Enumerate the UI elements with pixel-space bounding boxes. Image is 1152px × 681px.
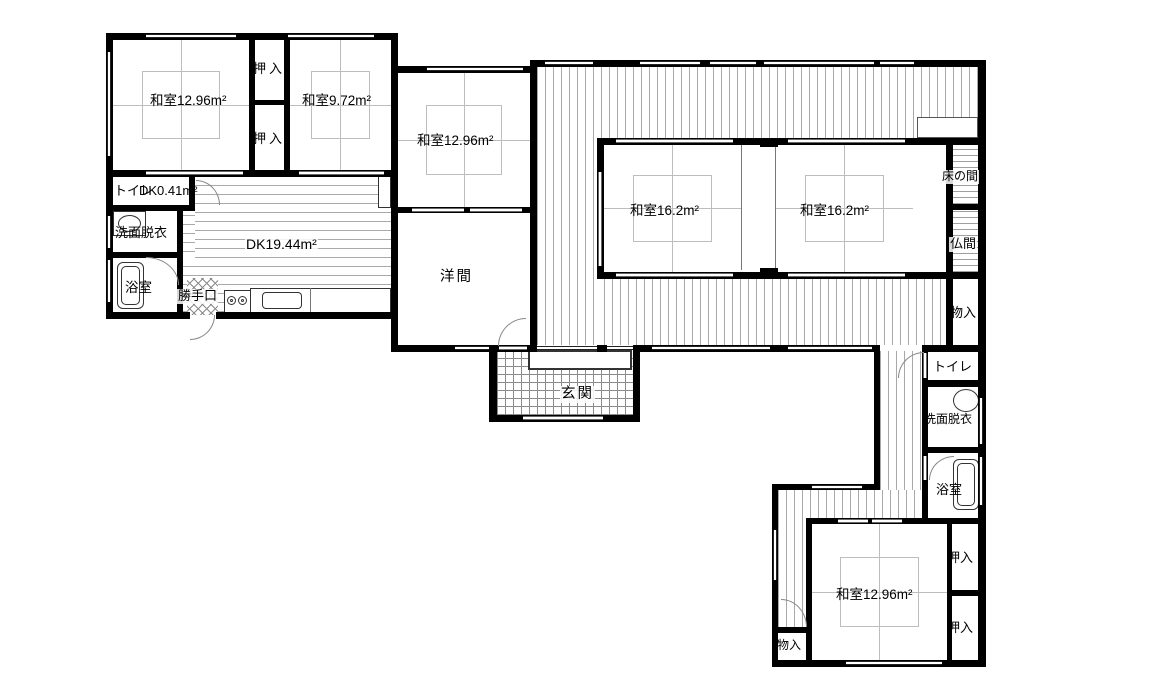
door-opening (788, 139, 905, 143)
door-opening (616, 273, 733, 277)
corridor-alcove (917, 117, 978, 138)
label-dk-main: DK19.44m² (245, 236, 318, 252)
label-bath-left: 浴室 (125, 280, 152, 296)
wall (530, 60, 986, 67)
label-washitsu-bottom-right: 和室12.96m² (836, 587, 913, 603)
wall (874, 351, 880, 490)
shelf-icon (378, 176, 391, 208)
wall (489, 345, 497, 422)
window (979, 457, 983, 505)
label-oshiire-br-lower: 押入 (947, 621, 973, 636)
wall (597, 345, 607, 352)
window (146, 34, 236, 38)
label-monoire-right: 物入 (950, 306, 976, 321)
window (537, 346, 597, 350)
door-opening (299, 171, 384, 175)
wall (106, 312, 190, 319)
partition-line (741, 145, 742, 270)
wall (947, 590, 978, 596)
door-opening (838, 519, 868, 523)
window (880, 61, 914, 65)
floor-corridor-left (537, 138, 597, 345)
wall (946, 204, 978, 210)
label-senmen-right: 洗面脱衣 (924, 413, 972, 427)
window (764, 61, 874, 65)
door-opening (598, 172, 602, 266)
partition-line (775, 145, 776, 270)
window (640, 61, 700, 65)
label-washitsu-center-2: 和室16.2m² (800, 203, 869, 219)
wall (177, 205, 183, 258)
label-youma: 洋間 (440, 269, 473, 286)
door-opening (146, 171, 243, 175)
floor-plan: 和室12.96m² 押入 押入 和室9.72m² トイレ DK0.41m² 洗面… (0, 0, 1152, 681)
wall (106, 252, 183, 258)
wall (633, 345, 640, 422)
wall (249, 100, 290, 105)
partition-line (310, 288, 311, 313)
window (773, 530, 777, 580)
door-opening (523, 416, 603, 420)
window (427, 67, 523, 71)
window (710, 61, 756, 65)
label-bath-right: 浴室 (936, 483, 962, 498)
shoe-cabinet-icon (528, 350, 632, 370)
door-swing-arc (498, 318, 526, 346)
door-opening (412, 208, 464, 212)
floor-corridor-top (537, 67, 978, 138)
window (607, 346, 633, 350)
window (979, 398, 983, 444)
stove-burner-icon (238, 296, 247, 305)
label-monoire-bottom: 物入 (777, 639, 801, 653)
label-washitsu-top-left: 和室12.96m² (150, 93, 227, 109)
label-oshiire-lower: 押入 (253, 132, 285, 147)
door-opening (872, 519, 902, 523)
wall (772, 627, 810, 633)
label-butsuma: 仏間 (949, 237, 977, 252)
door-opening (499, 346, 527, 350)
wall (391, 33, 398, 352)
wall (978, 60, 986, 666)
label-senmen-left: 洗面脱衣 (115, 226, 167, 241)
window (288, 34, 374, 38)
label-katteguchi: 勝手口 (177, 289, 218, 304)
window (812, 485, 862, 489)
label-oshiire-br-upper: 押入 (947, 551, 973, 566)
floor-corridor-bottom (604, 279, 946, 345)
stove-burner-icon (227, 296, 236, 305)
window (107, 216, 111, 248)
window (107, 52, 111, 156)
door-opening (788, 273, 905, 277)
door-opening (923, 456, 927, 480)
wall (922, 345, 986, 352)
label-washitsu-center-1: 和室16.2m² (630, 203, 699, 219)
washbasin-icon (953, 389, 979, 412)
wall (216, 312, 398, 319)
door-swing-arc (190, 315, 215, 340)
window (545, 61, 593, 65)
window (455, 346, 489, 350)
label-washitsu-972: 和室9.72m² (302, 93, 371, 109)
window (652, 346, 770, 350)
label-dk-small: DK0.41m² (139, 184, 198, 199)
wall (922, 447, 986, 453)
door-opening (616, 139, 733, 143)
label-oshiire-upper: 押入 (253, 62, 285, 77)
window (846, 661, 942, 665)
label-washitsu-middle: 和室12.96m² (417, 133, 494, 149)
label-toilet-right: トイレ (933, 360, 972, 375)
door-opening (470, 208, 522, 212)
wall (760, 138, 778, 147)
window (107, 260, 111, 302)
door-swing-arc (929, 456, 954, 480)
kitchen-sink-icon (262, 292, 302, 309)
wall (806, 524, 812, 660)
window (788, 346, 872, 350)
label-genkan: 玄関 (560, 386, 595, 403)
wall (922, 380, 986, 387)
label-tokonoma: 床の間 (941, 170, 979, 184)
floor-corridor-br-mid (778, 490, 922, 518)
floor-dk (183, 211, 195, 252)
